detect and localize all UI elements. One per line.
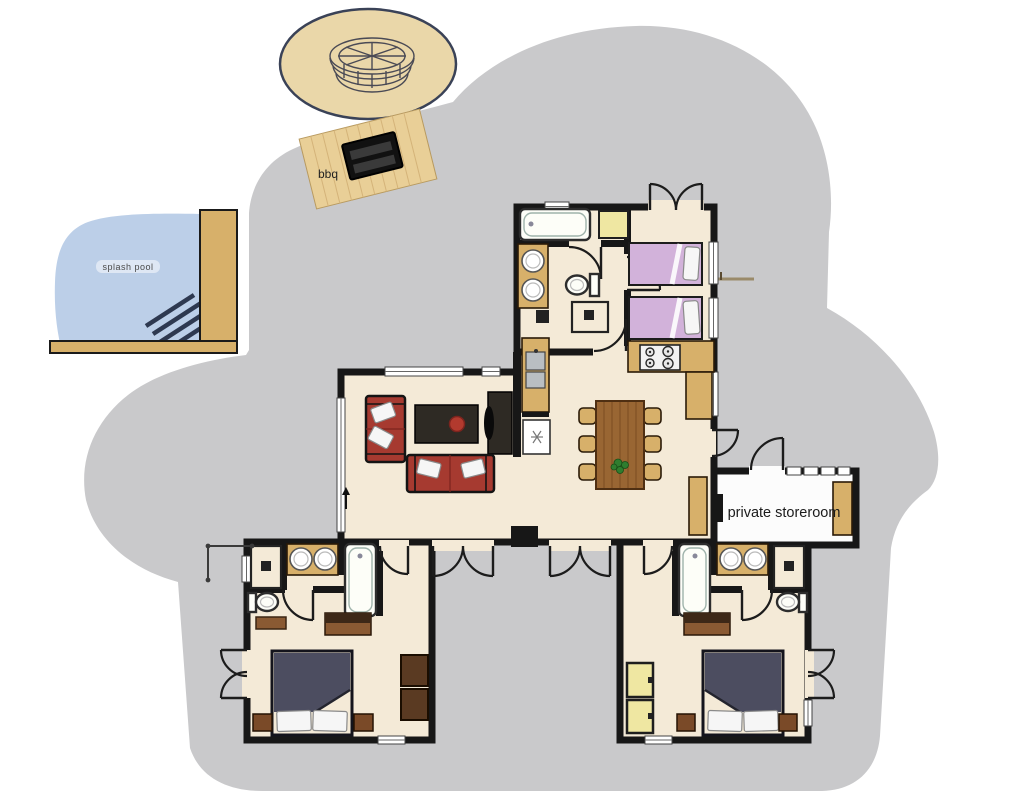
stove [640, 345, 680, 370]
window [804, 467, 818, 475]
basin [314, 548, 336, 570]
pool-edge-board [50, 341, 237, 353]
dining-chair [579, 464, 596, 480]
fireplace-pillar [511, 526, 538, 547]
cabinet [599, 211, 628, 238]
dining-chair [644, 436, 661, 452]
bathtub [520, 209, 590, 240]
single-bed [629, 243, 702, 285]
basin [522, 250, 544, 272]
bathtub [345, 544, 376, 616]
window [645, 736, 672, 744]
kitchen-counter-east [686, 372, 712, 419]
window [838, 467, 850, 475]
laundry-box [536, 310, 549, 323]
floorplan-canvas: bbq splash pool [0, 0, 1024, 812]
dining-chair [579, 436, 596, 452]
nightstand [253, 714, 272, 731]
east-wing-bedroom [627, 651, 797, 735]
nightstand [354, 714, 373, 731]
window [337, 398, 345, 532]
shower [251, 546, 281, 588]
toilet [777, 593, 807, 612]
basin [290, 548, 312, 570]
single-bed [629, 297, 702, 339]
bathtub [679, 544, 710, 616]
basin [744, 548, 766, 570]
window [378, 736, 405, 744]
splash-pool-label: splash pool [102, 262, 153, 272]
shower [572, 302, 608, 332]
coffee-table [415, 405, 478, 443]
dining-area [579, 401, 661, 489]
nightstand [779, 714, 797, 731]
window [385, 367, 463, 376]
window [787, 467, 801, 475]
dining-chair [644, 408, 661, 424]
basin [522, 279, 544, 301]
dresser [325, 613, 371, 635]
splash-pool-area: splash pool [50, 210, 237, 353]
wardrobe [627, 663, 653, 733]
armchair [401, 655, 428, 686]
toilet [566, 274, 599, 296]
fridge [523, 420, 550, 454]
dining-chair [644, 464, 661, 480]
window [242, 556, 251, 582]
toilet [248, 593, 278, 612]
shelf [256, 617, 286, 629]
window [821, 467, 835, 475]
storeroom-label: private storeroom [728, 505, 841, 521]
dining-table [596, 401, 644, 489]
window [709, 298, 718, 338]
sofa-three-seat [407, 455, 494, 492]
sofa-two-seat [366, 396, 405, 462]
pool-deck [200, 210, 237, 353]
dresser [684, 613, 730, 635]
tall-cabinet [689, 477, 707, 535]
basin [720, 548, 742, 570]
bbq-label: bbq [318, 167, 338, 181]
window [482, 367, 500, 376]
armchair [401, 689, 428, 720]
fire-pit-area [280, 9, 456, 119]
shower [774, 546, 804, 588]
tv-cabinet [484, 392, 512, 454]
dining-chair [579, 408, 596, 424]
nightstand [677, 714, 695, 731]
window [709, 242, 718, 284]
window [804, 700, 812, 726]
kitchen-sink [526, 349, 545, 388]
